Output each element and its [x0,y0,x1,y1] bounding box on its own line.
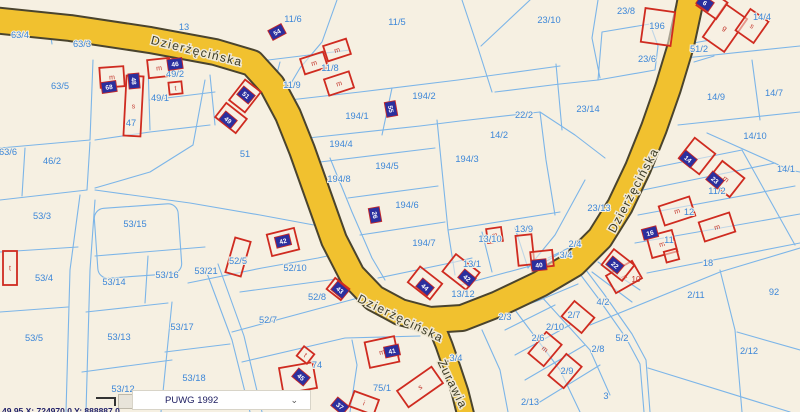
parcel-label: 51 [240,149,250,159]
building: m [324,71,354,95]
parcel-label: 18 [703,258,713,268]
parcel-label: 3 [603,391,608,401]
parcel-label: 2/12 [740,346,758,356]
parcel-label: 53/18 [182,373,205,383]
building: m [699,213,736,242]
parcel-label: 11/8 [321,63,338,73]
parcel-label: 13 [179,22,189,32]
parcel-boundary [210,75,215,125]
parcel-label: 51/2 [690,44,708,54]
parcel-label: 63/6 [0,147,17,157]
parcel-boundary [360,222,445,235]
parcel-label: 14/7 [765,88,783,98]
parcel-label: 2/3 [499,312,512,322]
parcel-boundary [90,60,93,140]
parcel-label: 13/9 [515,224,533,234]
parcel-boundary [0,190,87,200]
address-marker-number: 68 [105,84,114,92]
crs-selector-label: PUWG 1992 [165,395,290,406]
address-marker[interactable]: 46 [167,58,183,71]
toolbar-mini-button[interactable] [118,394,133,409]
parcel-boundary [752,60,760,120]
parcel-boundary [94,203,183,279]
crs-selector[interactable]: PUWG 1992 ⌄ [133,391,310,409]
map-viewer: msmtmmmmgsmmtmtimsmmmmmmmm63/463/31311/6… [0,0,800,412]
parcel-label: 14/1 [777,164,795,174]
parcel-label: 22/2 [515,110,533,120]
parcel-label: 194/8 [327,174,350,184]
address-marker-number: 46 [171,61,180,69]
building-type-letter: t [9,265,11,272]
parcel-boundary [437,120,455,275]
parcel-label: 14/10 [743,131,766,141]
parcel-label: 194/2 [412,91,435,101]
building: s [397,367,443,407]
parcel-boundary [66,195,80,412]
parcel-label: 2/11 [687,290,704,300]
address-marker-number: 48 [129,77,137,85]
parcel-label: 194/4 [329,139,352,149]
map-canvas[interactable]: msmtmmmmgsmmtmtimsmmmmmmmm63/463/31311/6… [0,0,800,412]
address-marker-number: 40 [535,262,543,270]
parcel-boundary [22,148,25,196]
parcel-label: 11/5 [388,17,405,27]
building-type-letter: m [156,65,163,73]
scalebar-end [96,397,116,406]
parcel-boundary [540,112,555,215]
parcel-boundary [218,264,262,412]
parcel-label: 13/1 [463,259,481,269]
parcel-label: 2/13 [521,397,539,407]
parcel-label: 11 [664,235,674,245]
parcel-label: 74 [312,360,322,370]
parcel-boundary [481,0,530,46]
parcel-boundary [232,298,358,332]
parcel-boundary [95,125,210,140]
parcel-boundary [720,270,742,412]
parcel-label: 23/6 [638,54,656,64]
parcel-label: 52/5 [229,256,247,266]
parcel-boundary [574,266,644,412]
parcel-label: 2/10 [546,322,564,332]
parcel-label: 23/10 [537,15,560,25]
parcel-label: 53/12 [111,384,134,394]
parcel-label: 46/2 [43,156,61,166]
building-number-label: 10 [632,275,641,284]
parcel-label: 53/15 [123,219,146,229]
parcel-label: 11/9 [283,80,300,90]
parcel-label: 49/1 [151,93,169,103]
parcel-label: 23/13 [587,203,610,213]
parcel-label: 194/6 [395,200,418,210]
parcel-label: 194/1 [345,111,368,121]
parcel-label: 52/10 [283,263,306,273]
parcel-boundary [482,330,508,412]
parcel-boundary [87,142,90,190]
parcel-label: 2/4 [569,239,582,249]
building: m [323,39,351,62]
parcel-label: 3/4 [560,250,573,260]
parcel-label: 53/3 [33,211,51,221]
parcel-label: 3/4 [450,353,463,363]
cursor-coordinates: 49,95 X: 724970,0 Y: 888887,0 [2,406,120,412]
parcel-boundary [495,80,598,92]
parcel-boundary [86,303,168,312]
address-marker[interactable]: 40 [531,259,547,272]
parcel-label: 47 [126,118,136,128]
parcel-label: 63/5 [51,81,69,91]
parcel-label: 2/8 [592,344,605,354]
parcel-boundary [320,148,435,162]
parcel-boundary [95,247,205,256]
parcel-label: 12 [684,207,694,217]
parcel-label: 14/4 [753,12,771,22]
parcel-boundary [448,212,560,230]
address-marker[interactable]: 54 [268,24,286,41]
parcel-label: 194/7 [412,238,435,248]
parcel-label: 92 [769,287,779,297]
parcel-label: 75/1 [373,383,391,393]
parcel-label: 14/9 [707,92,725,102]
building: t [168,81,182,94]
parcel-label: 53/14 [102,277,125,287]
parcel-label: 23/14 [576,104,599,114]
parcel-label: 53/5 [25,333,43,343]
parcel-label: 196 [649,21,665,31]
parcel-label: 13/10 [478,234,501,244]
parcel-label: 2/7 [568,310,581,320]
parcel-boundary [86,200,95,412]
parcel-boundary [0,307,68,312]
parcel-label: 11/6 [284,14,301,24]
parcel-boundary [678,112,800,125]
parcel-label: 63/4 [11,30,29,40]
parcel-label: 194/3 [455,154,478,164]
address-marker[interactable]: 55 [384,101,397,118]
building: i [349,391,379,412]
parcel-boundary [462,0,492,92]
parcel-label: 4/2 [597,297,610,307]
parcel-boundary [145,256,148,303]
parcel-label: 14/2 [490,130,508,140]
parcel-boundary [540,112,605,158]
parcel-label: 53/21 [194,266,217,276]
address-marker[interactable]: 26 [368,207,381,224]
parcel-label: 53/16 [155,270,178,280]
parcel-label: 2/6 [532,333,545,343]
address-marker[interactable]: 37 [331,397,350,412]
parcel-boundary [648,368,790,412]
parcel-label: 194/5 [375,161,398,171]
address-marker[interactable]: 48 [128,73,140,89]
parcel-label: 53/4 [35,273,53,283]
parcel-label: 23/8 [617,6,635,16]
parcel-label: 2/9 [561,366,574,376]
parcel-boundary [348,186,438,198]
chevron-down-icon: ⌄ [290,395,298,406]
building [664,249,679,263]
parcel-label: 52/8 [308,292,326,302]
parcel-boundary [82,360,172,372]
parcel-label: 13/12 [451,289,474,299]
parcel-boundary [165,344,230,352]
parcel-label: 53/17 [170,322,193,332]
parcel-boundary [556,64,562,130]
address-marker[interactable]: 68 [101,81,117,94]
building: t [3,251,17,285]
parcel-label: 63/3 [73,39,91,49]
parcel-label: 53/13 [107,332,130,342]
parcel-label: 52/7 [259,315,277,325]
parcel-label: 5/2 [616,333,629,343]
